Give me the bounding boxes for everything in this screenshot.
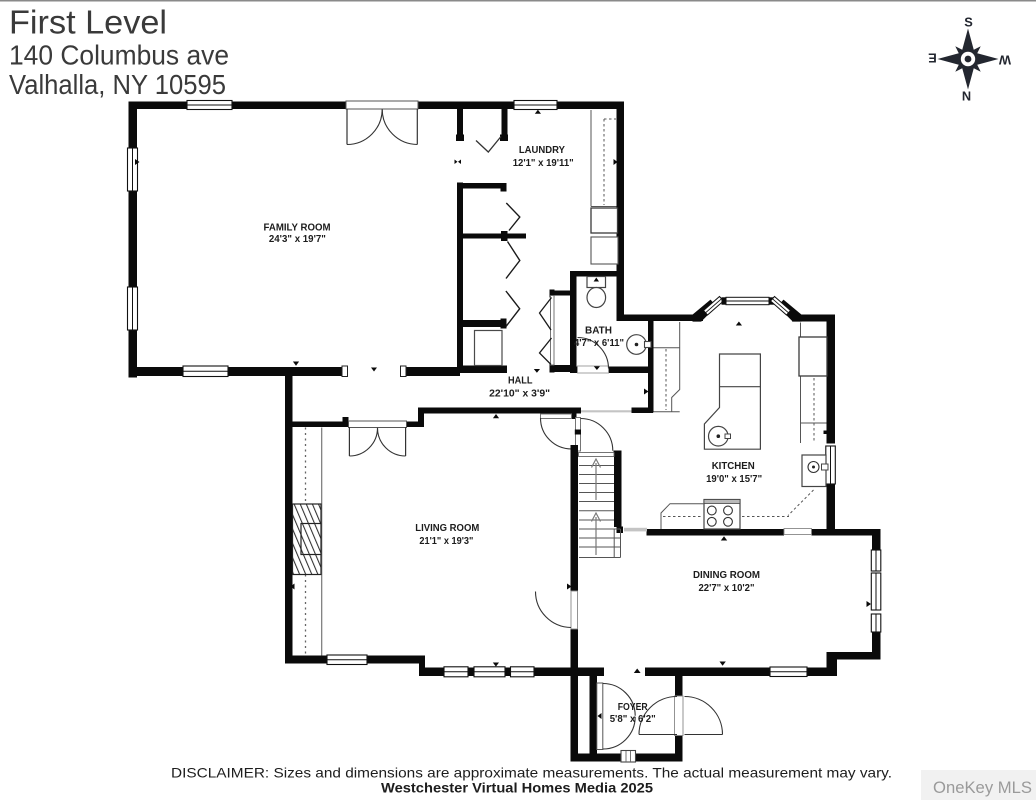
svg-text:Valhalla, NY 10595: Valhalla, NY 10595 (9, 69, 226, 100)
svg-text:140 Columbus ave: 140 Columbus ave (9, 40, 229, 71)
svg-text:First Level: First Level (9, 5, 167, 42)
svg-text:24'3" x 19'7": 24'3" x 19'7" (269, 234, 326, 245)
svg-text:22'10" x 3'9": 22'10" x 3'9" (489, 389, 550, 400)
svg-text:LIVING ROOM: LIVING ROOM (415, 523, 479, 534)
svg-text:FOYER: FOYER (618, 702, 649, 713)
svg-text:KITCHEN: KITCHEN (712, 461, 755, 472)
svg-text:21'1" x 19'3": 21'1" x 19'3" (419, 536, 473, 547)
svg-text:4'7" x 6'11": 4'7" x 6'11" (574, 338, 624, 349)
svg-text:12'1" x 19'11": 12'1" x 19'11" (513, 158, 574, 169)
svg-text:5'8" x 6'2": 5'8" x 6'2" (610, 714, 656, 725)
svg-text:DINING ROOM: DINING ROOM (693, 570, 760, 581)
svg-text:19'0" x 15'7": 19'0" x 15'7" (706, 474, 762, 485)
svg-text:E: E (928, 51, 937, 66)
svg-text:LAUNDRY: LAUNDRY (519, 145, 565, 156)
svg-text:Westchester Virtual Homes Medi: Westchester Virtual Homes Media 2025 (381, 781, 654, 796)
svg-text:DISCLAIMER: Sizes and dimensio: DISCLAIMER: Sizes and dimensions are app… (171, 765, 892, 781)
svg-text:HALL: HALL (508, 376, 533, 387)
svg-text:FAMILY ROOM: FAMILY ROOM (264, 223, 331, 234)
svg-text:BATH: BATH (585, 325, 612, 336)
svg-text:22'7" x 10'2": 22'7" x 10'2" (699, 583, 755, 594)
svg-text:OneKey MLS: OneKey MLS (933, 779, 1032, 797)
svg-text:S: S (964, 15, 973, 30)
svg-text:N: N (962, 89, 971, 104)
svg-text:W: W (998, 53, 1011, 68)
